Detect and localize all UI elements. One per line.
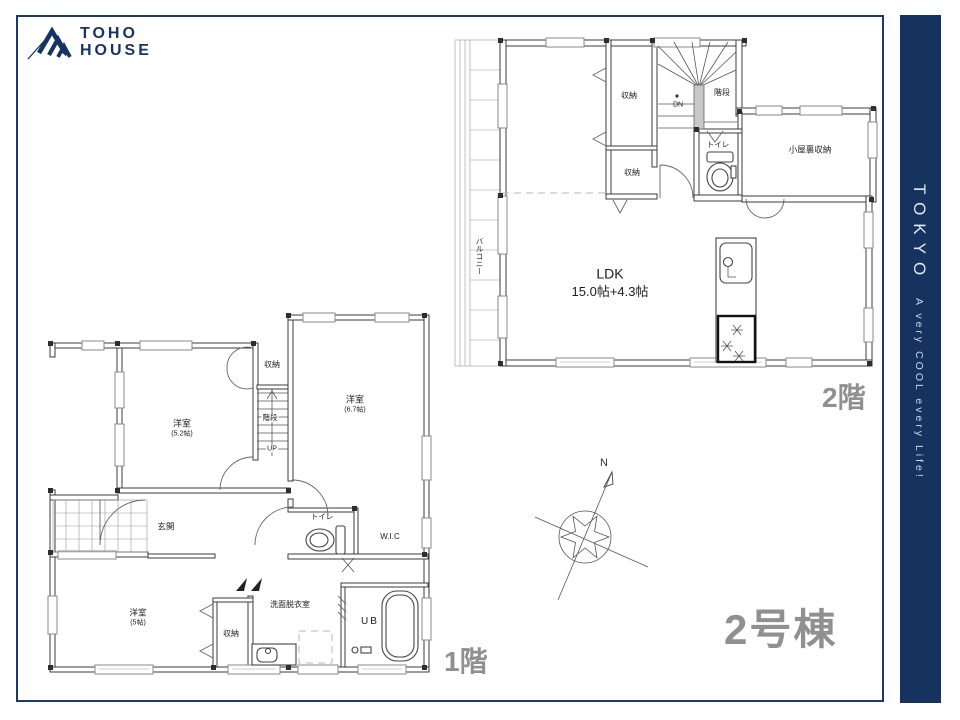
label-1f-stairs: 階段	[262, 414, 279, 422]
label-2f-dn: DN	[673, 101, 683, 108]
washroom-fixtures	[252, 558, 354, 665]
label-2f-closet-mid: 収納	[624, 169, 640, 177]
label-1f-up: UP	[266, 445, 278, 452]
stairs-2f	[658, 42, 737, 129]
label-floor1: 1階	[444, 647, 488, 676]
floor1-doors	[200, 347, 328, 658]
label-1f-wic: W.I.C	[380, 533, 400, 541]
label-1f-entrance: 玄関	[157, 523, 174, 532]
floor2-walls	[500, 40, 876, 366]
label-1f-washroom: 洗面脱衣室	[270, 601, 310, 609]
label-1f-bath: UB	[361, 617, 379, 628]
label-1f-bed1-size: (5.2帖)	[171, 430, 192, 437]
label-building: 2号棟	[724, 608, 837, 652]
label-2f-ldk-size: 15.0帖+4.3帖	[572, 285, 649, 299]
label-1f-bed2: 洋室	[346, 395, 364, 404]
label-2f-balcony: バルコニー	[475, 237, 483, 275]
label-floor2: 2階	[822, 383, 866, 412]
label-1f-closet-bottom: 収納	[223, 630, 239, 638]
label-compass-north: N	[600, 458, 608, 470]
label-1f-bed3: 洋室	[129, 609, 146, 618]
kitchen-icon	[716, 238, 756, 362]
label-1f-closet-top: 収納	[264, 361, 280, 369]
label-2f-attic: 小屋裏収納	[789, 146, 832, 155]
label-2f-toilet: トイレ	[707, 141, 730, 149]
label-2f-ldk: LDK	[596, 267, 623, 282]
label-1f-bed2-size: (6.7帖)	[344, 406, 365, 413]
entrance-porch	[53, 500, 147, 552]
balcony-grid	[455, 40, 500, 366]
compass-icon	[535, 472, 648, 600]
label-1f-bed3-size: (5帖)	[130, 619, 146, 626]
floor2-plan	[455, 38, 877, 367]
label-1f-toilet: トイレ	[311, 513, 334, 521]
label-2f-closet-top: 収納	[621, 92, 637, 100]
label-1f-bed1: 洋室	[173, 419, 191, 428]
label-2f-stairs: 階段	[713, 89, 731, 97]
floorplan-page: TOHO HOUSE TOKYO A very COOL every Life!	[0, 0, 960, 720]
